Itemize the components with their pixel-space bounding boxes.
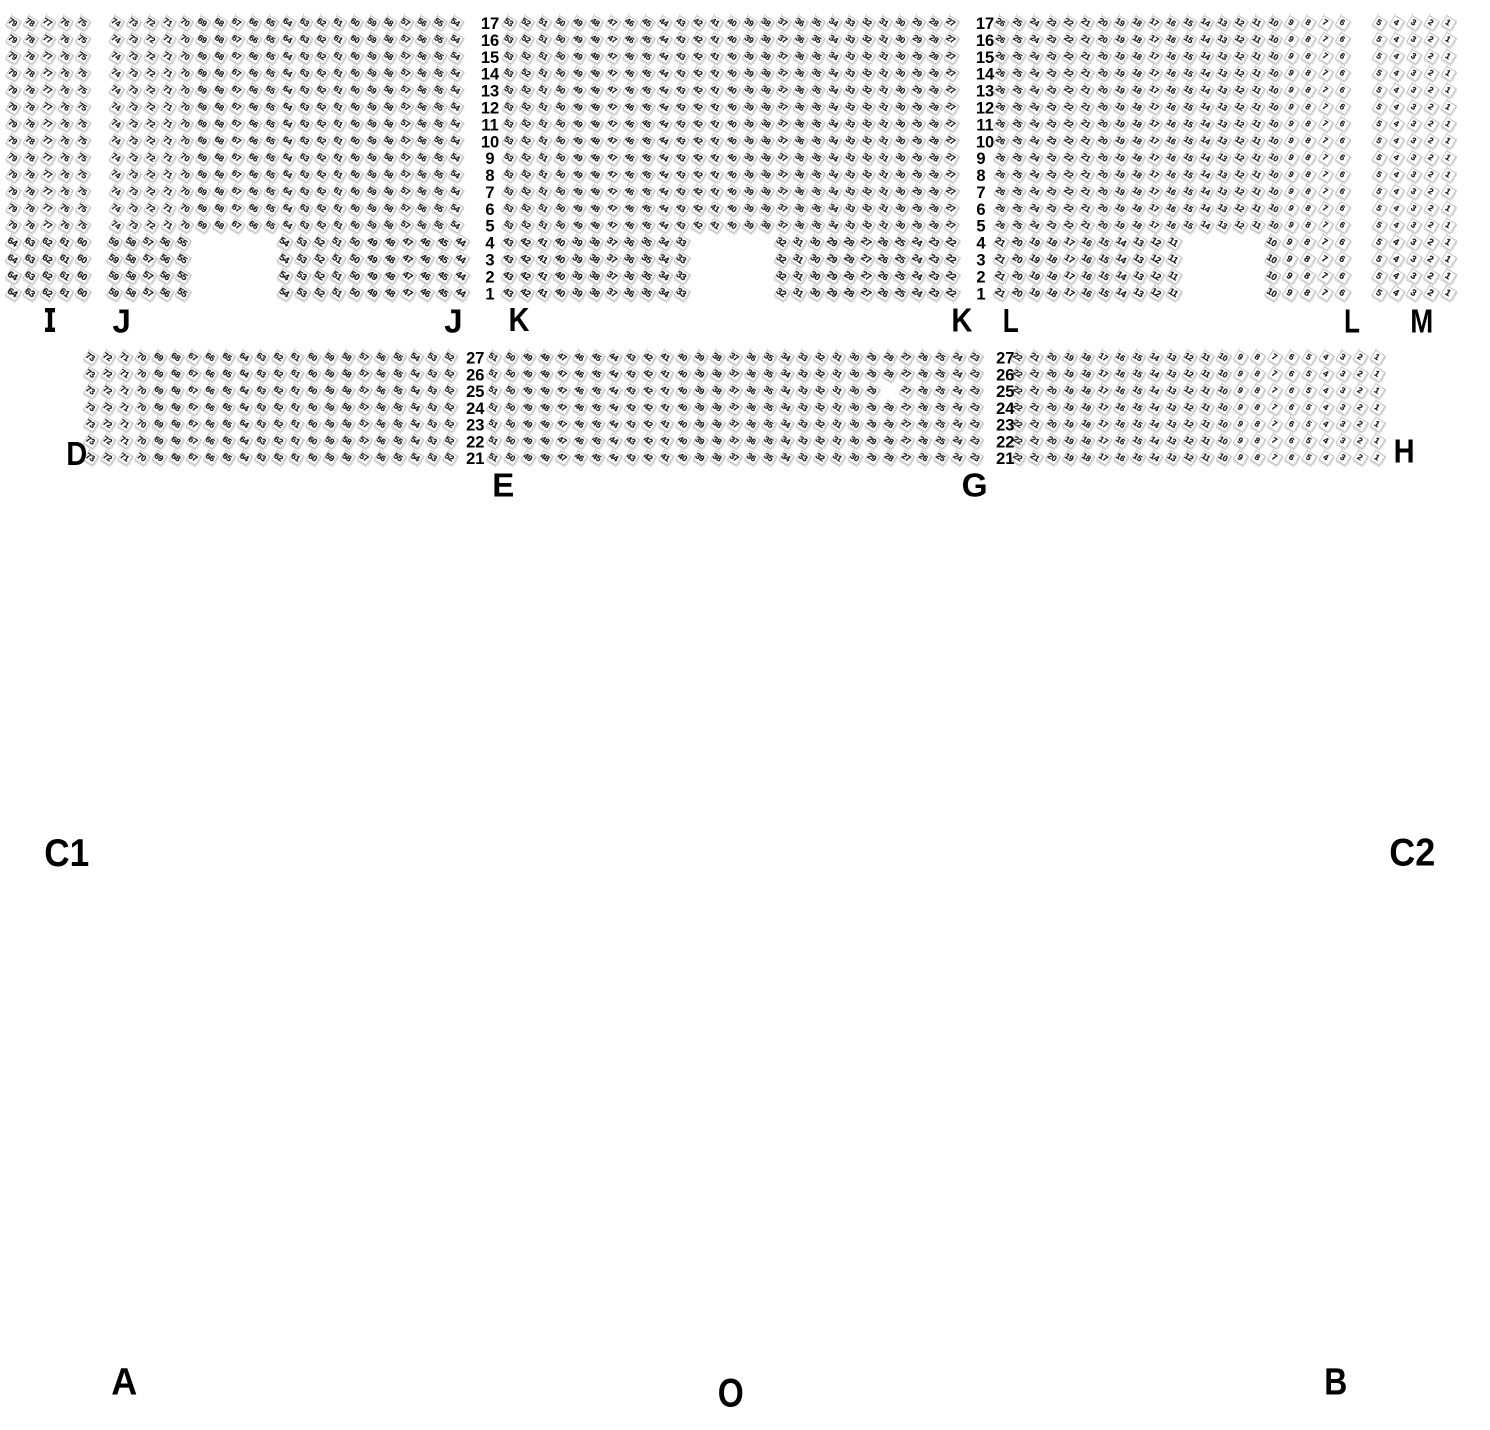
svg-text:12: 12 xyxy=(976,100,994,118)
svg-text:25: 25 xyxy=(996,383,1014,401)
svg-text:21: 21 xyxy=(466,450,484,468)
svg-text:B: B xyxy=(1324,1362,1347,1404)
svg-text:1: 1 xyxy=(485,285,494,303)
svg-text:24: 24 xyxy=(996,400,1015,418)
svg-text:K: K xyxy=(951,302,972,339)
svg-text:2: 2 xyxy=(976,268,985,286)
svg-text:3: 3 xyxy=(485,252,494,270)
svg-text:C1: C1 xyxy=(44,832,89,875)
svg-text:15: 15 xyxy=(976,49,994,67)
svg-text:10: 10 xyxy=(481,133,499,151)
svg-text:2: 2 xyxy=(485,268,494,286)
svg-text:11: 11 xyxy=(481,116,498,134)
svg-text:15: 15 xyxy=(481,49,499,67)
svg-text:6: 6 xyxy=(976,201,985,219)
svg-text:16: 16 xyxy=(976,32,994,50)
svg-text:L: L xyxy=(1344,303,1360,340)
svg-text:6: 6 xyxy=(485,201,494,219)
svg-text:11: 11 xyxy=(976,116,993,134)
svg-text:5: 5 xyxy=(976,218,985,236)
svg-text:26: 26 xyxy=(996,366,1014,384)
svg-text:17: 17 xyxy=(976,15,994,33)
svg-text:13: 13 xyxy=(976,83,994,101)
svg-text:O: O xyxy=(718,1371,744,1415)
svg-text:22: 22 xyxy=(996,433,1014,451)
svg-text:25: 25 xyxy=(466,383,484,401)
svg-text:10: 10 xyxy=(976,133,994,151)
svg-text:27: 27 xyxy=(466,350,484,368)
svg-text:J: J xyxy=(444,303,462,340)
svg-text:13: 13 xyxy=(481,83,499,101)
svg-text:27: 27 xyxy=(996,350,1014,368)
svg-text:7: 7 xyxy=(976,184,985,202)
svg-text:22: 22 xyxy=(466,433,484,451)
svg-text:J: J xyxy=(113,303,131,340)
svg-text:17: 17 xyxy=(481,15,499,33)
svg-text:1: 1 xyxy=(976,285,985,303)
svg-text:7: 7 xyxy=(485,184,494,202)
svg-text:12: 12 xyxy=(481,100,499,118)
svg-text:8: 8 xyxy=(485,167,494,185)
svg-text:26: 26 xyxy=(466,366,484,384)
svg-text:9: 9 xyxy=(485,150,494,168)
svg-text:4: 4 xyxy=(485,235,495,253)
svg-text:G: G xyxy=(962,467,988,504)
svg-text:D: D xyxy=(66,435,87,472)
svg-text:C2: C2 xyxy=(1389,832,1435,875)
svg-text:5: 5 xyxy=(485,218,494,236)
svg-text:14: 14 xyxy=(481,66,500,84)
svg-text:H: H xyxy=(1394,432,1415,469)
svg-text:3: 3 xyxy=(976,252,985,270)
svg-text:21: 21 xyxy=(996,450,1014,468)
svg-text:M: M xyxy=(1410,303,1433,340)
svg-text:K: K xyxy=(509,301,530,338)
svg-text:14: 14 xyxy=(976,66,995,84)
svg-text:9: 9 xyxy=(976,150,985,168)
svg-text:23: 23 xyxy=(996,417,1014,435)
svg-text:8: 8 xyxy=(976,167,985,185)
svg-text:23: 23 xyxy=(466,417,484,435)
svg-text:4: 4 xyxy=(976,235,986,253)
svg-text:L: L xyxy=(1003,302,1019,339)
svg-text:A: A xyxy=(111,1362,137,1404)
svg-text:16: 16 xyxy=(481,32,499,50)
svg-text:E: E xyxy=(492,467,514,504)
svg-text:24: 24 xyxy=(466,400,485,418)
